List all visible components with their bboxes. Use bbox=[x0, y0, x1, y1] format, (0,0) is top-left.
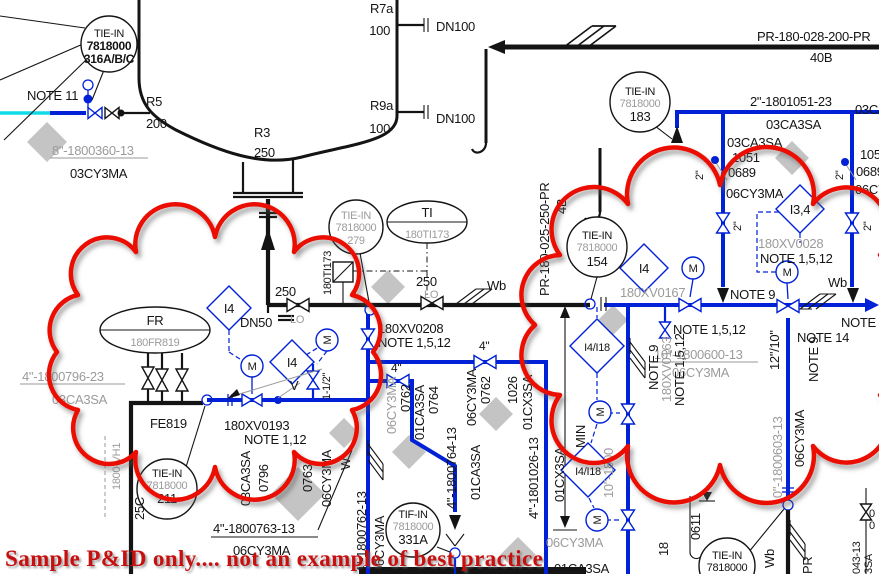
tag-edge: 0 bbox=[869, 508, 875, 520]
line-1801026: 4"-1801026-13 bbox=[526, 437, 541, 519]
insulation-wb: Wb bbox=[828, 275, 847, 290]
motor-m: M bbox=[595, 407, 607, 416]
tie-in-number: 7818000 bbox=[336, 222, 377, 234]
line-number: 8"-1800360-13 bbox=[52, 143, 134, 158]
nozzle-r3-size: 250 bbox=[254, 145, 275, 160]
nozzle-r5-size: 200 bbox=[146, 116, 167, 131]
spec-03cy3ma: 03CY3MA bbox=[70, 166, 128, 181]
dn100-label: DN100 bbox=[436, 19, 475, 34]
note-9: NOTE 9 bbox=[730, 287, 775, 302]
tie-in-id-279: 279 bbox=[347, 235, 365, 247]
pid-diagram: TIE-IN 7818000 316A/B/C NOTE 11 R5 200 R… bbox=[0, 0, 879, 574]
spec-06cy3ma: 06CY3MA bbox=[464, 368, 479, 426]
spec-01ca3sa: 01CA3SA bbox=[554, 561, 610, 574]
spec-01cx3sa: 01CX3SA bbox=[552, 446, 567, 502]
line-class-40b: 40B bbox=[810, 50, 832, 65]
line-edge: 043-13 bbox=[851, 541, 863, 574]
tie-in-number: 7818000 bbox=[577, 242, 618, 254]
line-gray: 10"-1800 bbox=[601, 448, 616, 498]
motor-m: M bbox=[248, 361, 257, 373]
flow-arrow-left bbox=[488, 40, 505, 54]
tie-in-title: TIE-IN bbox=[712, 550, 742, 562]
tag-180ti173: 180TI173 bbox=[322, 251, 334, 295]
line-1801051: 2"-1801051-23 bbox=[750, 94, 832, 109]
interlock-i4-label: I4 bbox=[224, 301, 234, 316]
tag-0689: 0689 bbox=[728, 165, 756, 180]
insulation-wb: Wb bbox=[762, 549, 777, 568]
note-1-5-12: NOTE 1,5,12 bbox=[672, 333, 687, 406]
tif-in-id-331a: 331A bbox=[398, 532, 428, 547]
size-1-1-2in: 1-1/2" bbox=[321, 372, 333, 400]
valve-xv0167 bbox=[679, 299, 701, 312]
note-1-5-12: NOTE 1,5,12 bbox=[760, 251, 833, 266]
valve-motor bbox=[777, 300, 799, 313]
tag-0796: 0796 bbox=[256, 464, 271, 492]
tag-edge: 0 bbox=[869, 520, 875, 532]
flow-arrow-up bbox=[261, 228, 275, 250]
line-pr-180-028: PR-180-028-200-PR bbox=[757, 29, 870, 44]
interlock-i34-label: I3,4 bbox=[790, 202, 811, 217]
tag-0611: 0611 bbox=[688, 513, 703, 540]
tag-0764: 0764 bbox=[426, 386, 441, 414]
valve-v: V bbox=[290, 378, 299, 393]
valve-2in bbox=[846, 213, 859, 233]
valve-4in bbox=[474, 356, 496, 369]
tag-18: 18 bbox=[656, 542, 671, 556]
vent-circle bbox=[83, 80, 93, 90]
valve-xv0193 bbox=[242, 394, 262, 406]
tif-in-title: TIF-IN bbox=[398, 509, 428, 521]
dn50-label: DN50 bbox=[240, 315, 272, 330]
insulation-wb: Wb bbox=[487, 278, 506, 293]
motor-m: M bbox=[689, 263, 698, 275]
spec-06cy3ma: 06CY3MA bbox=[726, 186, 784, 201]
spec-01ca3sa: 01CA3SA bbox=[412, 384, 427, 440]
note-1-5-12: NOTE 1,5,12 bbox=[378, 335, 451, 350]
valve bbox=[156, 369, 168, 391]
valve-lo: LO bbox=[290, 314, 305, 326]
tag-xv0193: 180XV0193 bbox=[224, 418, 289, 433]
nozzle-r9a: R9a bbox=[370, 98, 394, 113]
tie-in-number: 7818000 bbox=[87, 39, 132, 53]
size-12-10: 12"/10" bbox=[767, 330, 782, 370]
line-break-hook bbox=[472, 143, 486, 153]
valve bbox=[142, 367, 154, 389]
labels: TIE-IN 7818000 316A/B/C NOTE 11 R5 200 R… bbox=[22, 1, 879, 574]
tie-in-id-154: 154 bbox=[587, 254, 608, 269]
valve-1-1-2in bbox=[307, 371, 319, 389]
valve-vent bbox=[660, 322, 671, 338]
tag-0763: 0763 bbox=[300, 464, 315, 492]
line-pr-180-025: PR-180-025-250-PR bbox=[537, 183, 552, 296]
valve-size-250: 250 bbox=[275, 284, 296, 299]
interlock-i4-label: I4 bbox=[287, 355, 297, 370]
nozzle-r7a-size: 100 bbox=[369, 23, 390, 38]
size-2in: 2" bbox=[732, 221, 744, 231]
tie-in-number: 7818000 bbox=[707, 562, 748, 574]
valve bbox=[88, 108, 102, 119]
valve bbox=[105, 108, 119, 119]
spec-01ca3sa: 01CA3SA bbox=[468, 444, 483, 500]
valve-xv0208 bbox=[362, 329, 375, 349]
note-9: NOTE 9 bbox=[806, 337, 821, 382]
motor-m: M bbox=[783, 267, 792, 279]
instrument-fr-tag: 180FR819 bbox=[131, 337, 180, 349]
note-14: NOTE 14 bbox=[841, 315, 879, 330]
spec-gray: 06CY3MA bbox=[384, 376, 399, 434]
size-4in: 4" bbox=[391, 361, 401, 375]
watermark-disclaimer: Sample P&ID only.... not an example of b… bbox=[5, 546, 543, 572]
spec-edge: 3SA bbox=[863, 553, 875, 574]
size-2in: 2" bbox=[834, 170, 846, 180]
tie-in-title: TIE-IN bbox=[625, 86, 655, 98]
interlock-i4-label: I4 bbox=[639, 261, 649, 276]
nozzle-r9a-size: 100 bbox=[369, 121, 390, 136]
tie-in-title: TIE-IN bbox=[341, 210, 371, 222]
note-1-12: NOTE 1,12 bbox=[244, 432, 306, 447]
tag-edge: 0689 bbox=[856, 164, 879, 179]
spec-gray: 06CY3MA bbox=[546, 535, 604, 550]
tag-1026: 1026 bbox=[505, 376, 520, 404]
tag-edge: 1051 bbox=[860, 147, 879, 162]
motor-m: M bbox=[592, 515, 604, 524]
tag-xv0208: 180XV0208 bbox=[378, 321, 443, 336]
interlock-i4-i18-label: I4/I18 bbox=[584, 342, 610, 354]
min-label: MIN bbox=[573, 425, 588, 448]
tie-in-title: TIE-IN bbox=[582, 230, 612, 242]
tag-gray: 1800-VH1 bbox=[111, 443, 123, 490]
service-pr: PR bbox=[800, 557, 815, 574]
valve-lo: LO bbox=[424, 289, 439, 301]
valve-250-lo bbox=[287, 299, 309, 312]
tag-xv0167: 180XV0167 bbox=[620, 285, 685, 300]
nozzle-r5: R5 bbox=[146, 94, 162, 109]
instrument-ti-label: TI bbox=[422, 205, 433, 220]
note-14: NOTE 14 bbox=[797, 330, 849, 345]
tie-in-id-183: 183 bbox=[630, 109, 651, 124]
instrument-fr-label: FR bbox=[147, 313, 164, 328]
line-1800764: 4"-1800764-13 bbox=[444, 427, 459, 509]
valve-2in bbox=[717, 213, 730, 233]
tie-in-title: TIE-IN bbox=[152, 468, 182, 480]
nozzle-r3: R3 bbox=[254, 125, 270, 140]
line-class-25c: 25C bbox=[132, 497, 147, 520]
motor-m: M bbox=[322, 335, 334, 344]
size-4in: 4" bbox=[479, 339, 489, 353]
line-1800763: 4"-1800763-13 bbox=[213, 521, 295, 536]
size-2in: 2" bbox=[694, 170, 706, 180]
pid-drawing-sheet: TIE-IN 7818000 316A/B/C NOTE 11 R5 200 R… bbox=[0, 0, 879, 574]
tag-fe819: FE819 bbox=[150, 416, 187, 431]
line-gray: 10"-1800603-13 bbox=[770, 416, 785, 505]
valve-size-250: 250 bbox=[416, 274, 437, 289]
spec-06cy3ma: 06CY3MA bbox=[792, 409, 807, 467]
tag-0762: 0762 bbox=[478, 376, 493, 404]
tag-xv0028: 180XV0028 bbox=[758, 236, 823, 251]
spec-03ca3sa: 03CA3SA bbox=[766, 117, 822, 132]
tag-0762: 0762 bbox=[398, 384, 413, 412]
valve bbox=[176, 369, 188, 391]
dn100-label: DN100 bbox=[436, 111, 475, 126]
line-1800796: 4"-1800796-23 bbox=[22, 369, 104, 384]
interlock-i4-i18-label: I4/I18 bbox=[575, 466, 601, 478]
note-11: NOTE 11 bbox=[27, 88, 78, 103]
size-2in: 2" bbox=[862, 221, 874, 231]
valve bbox=[622, 510, 635, 530]
spec-edge: 03CA3SA bbox=[855, 102, 879, 117]
instrument-ti-tag: 180TI173 bbox=[405, 229, 449, 241]
tie-in-id: 316A/B/C bbox=[84, 52, 135, 66]
valve bbox=[622, 404, 635, 424]
spec-06cy3ma: 06CY3MA bbox=[319, 449, 334, 507]
nozzle-r7a: R7a bbox=[370, 1, 394, 16]
